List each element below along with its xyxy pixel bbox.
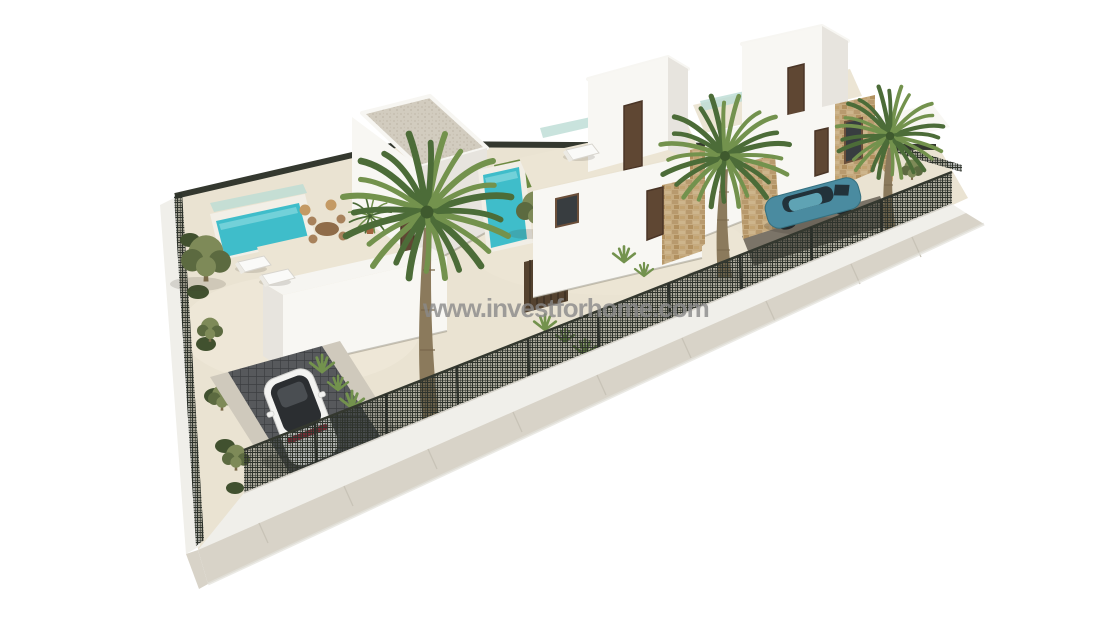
render-stage: www.investforhome.com — [0, 0, 1110, 626]
villa-middle — [519, 57, 702, 298]
watermark-text: www.investforhome.com — [423, 295, 709, 321]
